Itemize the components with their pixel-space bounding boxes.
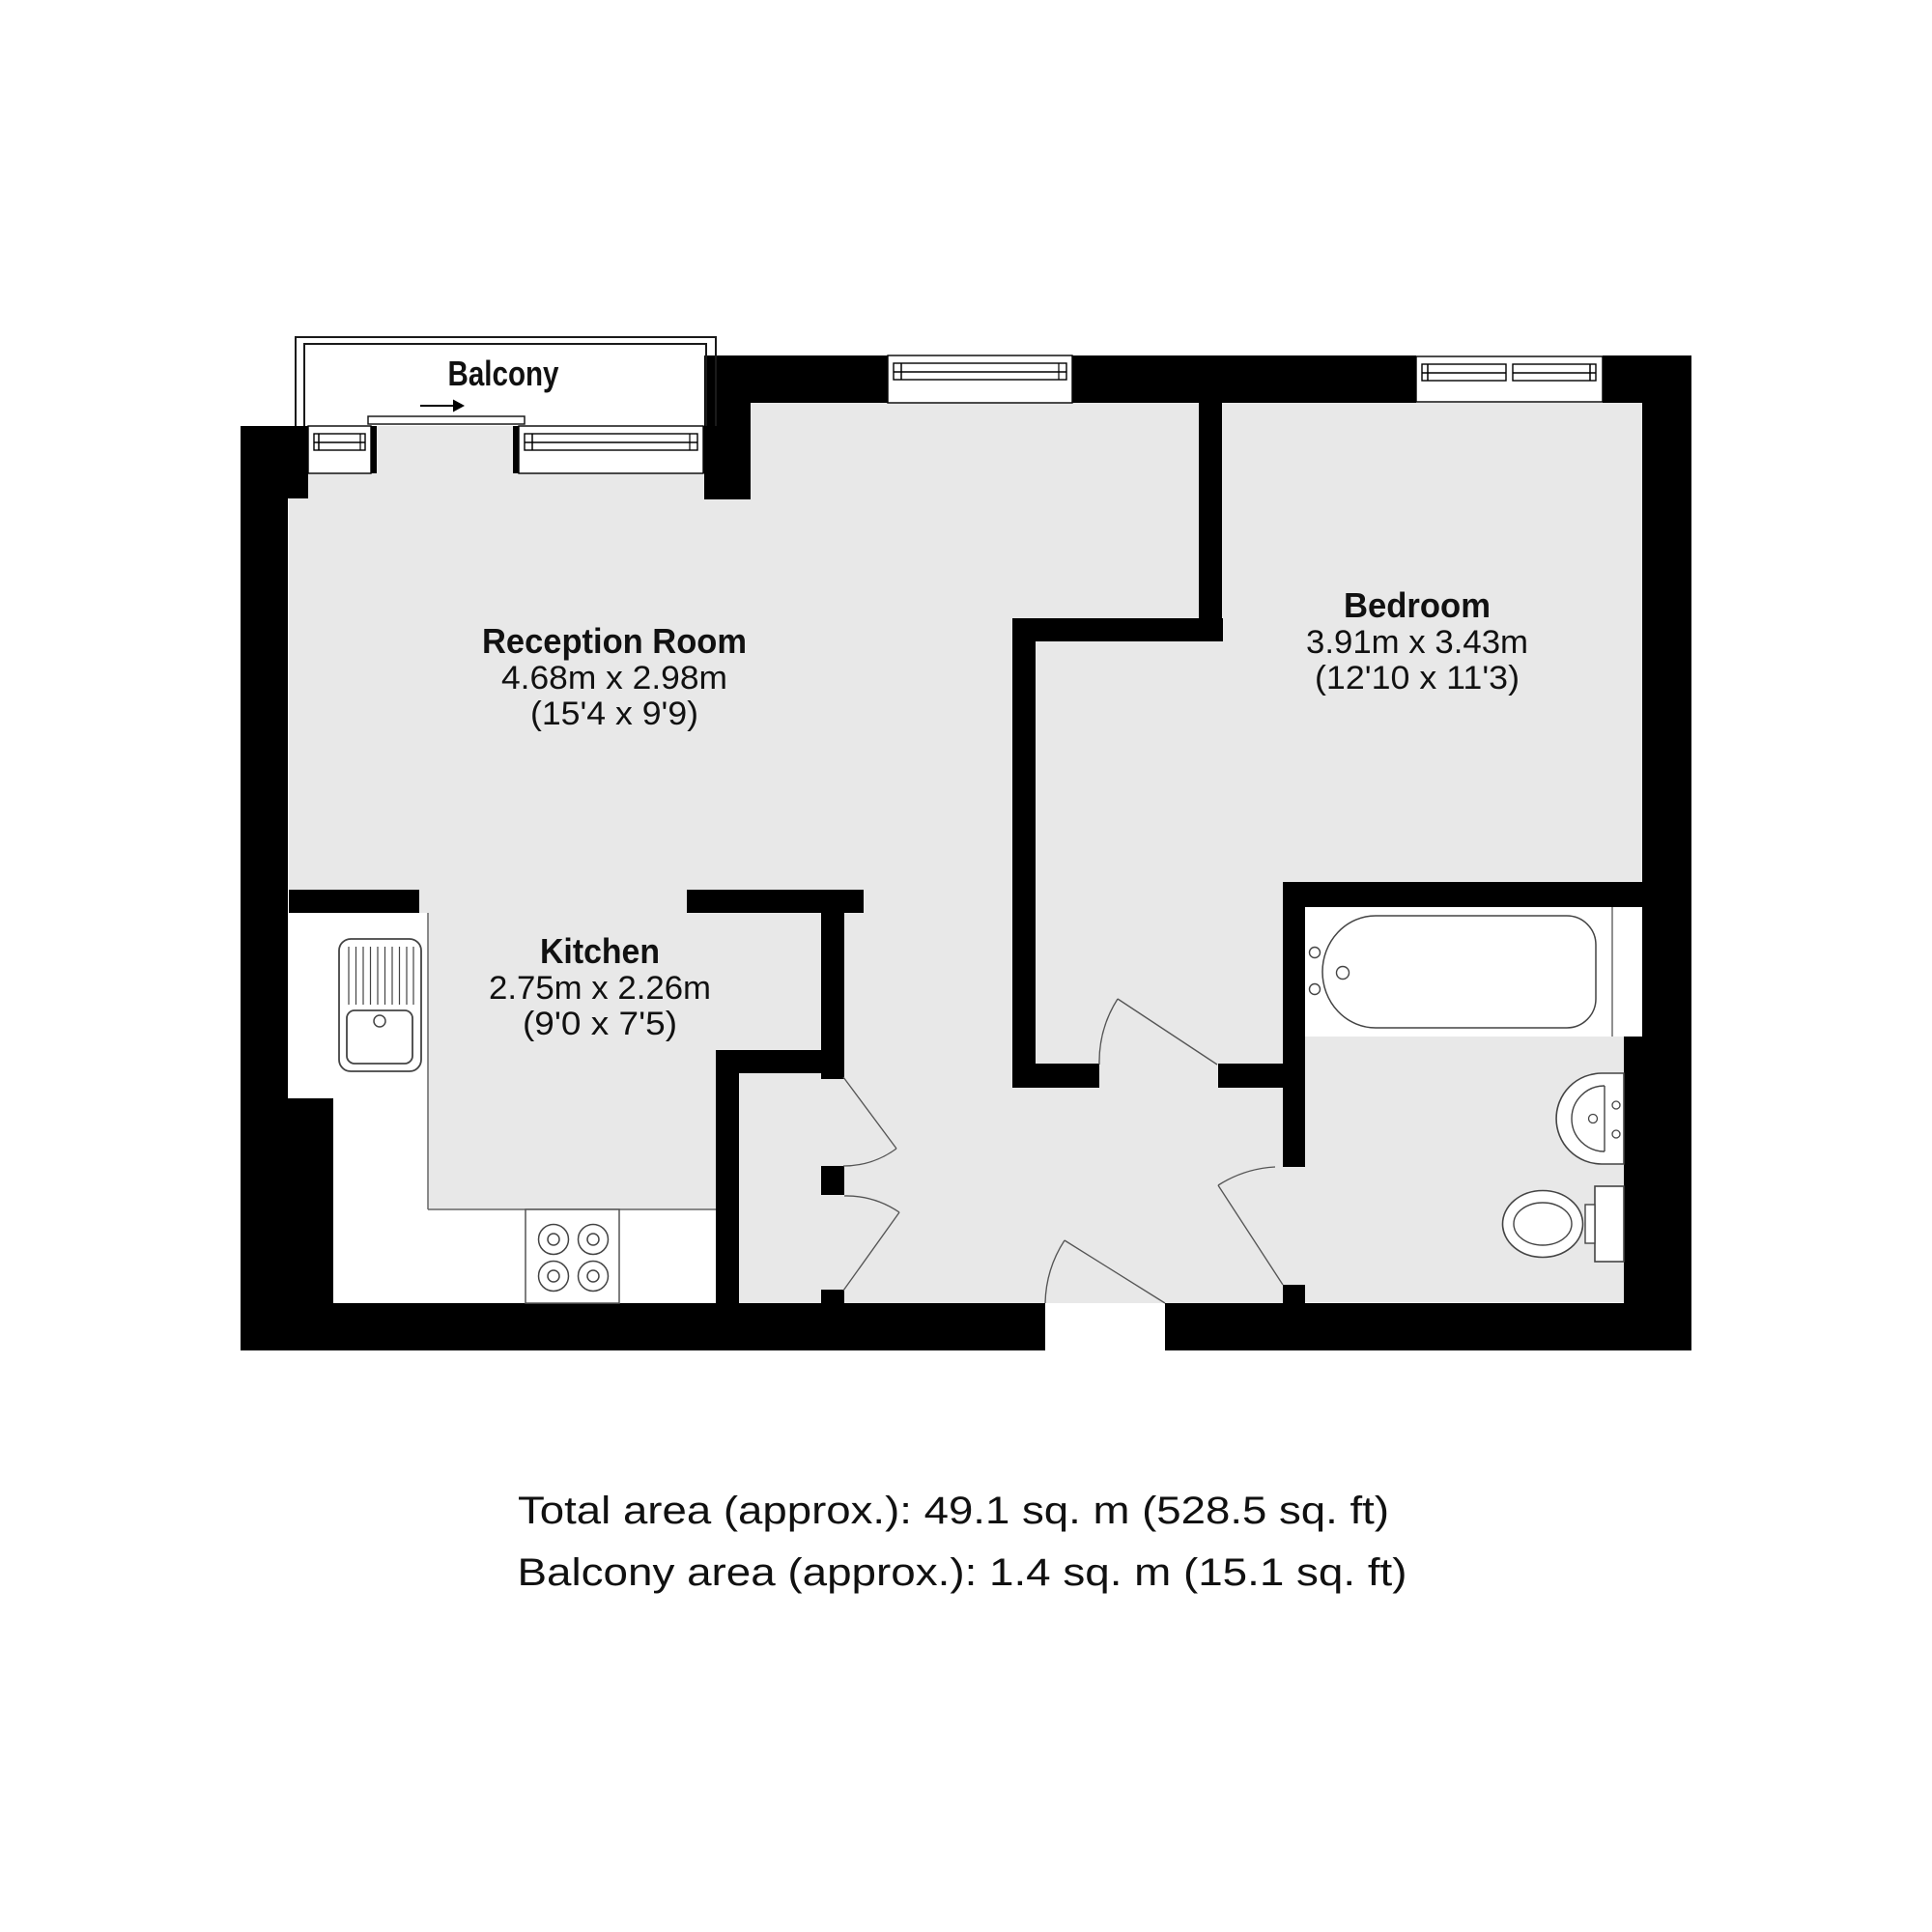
svg-text:3.91m x 3.43m: 3.91m x 3.43m bbox=[1306, 624, 1528, 661]
svg-text:Bedroom: Bedroom bbox=[1344, 585, 1491, 625]
svg-text:4.68m x 2.98m: 4.68m x 2.98m bbox=[501, 660, 727, 696]
svg-text:Kitchen: Kitchen bbox=[540, 931, 660, 971]
svg-text:Balcony: Balcony bbox=[448, 354, 559, 393]
svg-text:Balcony area (approx.): 1.4 sq: Balcony area (approx.): 1.4 sq. m (15.1 … bbox=[518, 1551, 1407, 1594]
svg-text:Reception Room: Reception Room bbox=[482, 621, 747, 661]
svg-text:2.75m x 2.26m: 2.75m x 2.26m bbox=[489, 970, 711, 1007]
svg-text:(12'10 x 11'3): (12'10 x 11'3) bbox=[1315, 660, 1520, 696]
svg-text:Total area (approx.): 49.1 sq.: Total area (approx.): 49.1 sq. m (528.5 … bbox=[518, 1490, 1389, 1532]
svg-text:(9'0 x 7'5): (9'0 x 7'5) bbox=[523, 1006, 677, 1042]
svg-text:(15'4 x 9'9): (15'4 x 9'9) bbox=[530, 696, 698, 732]
